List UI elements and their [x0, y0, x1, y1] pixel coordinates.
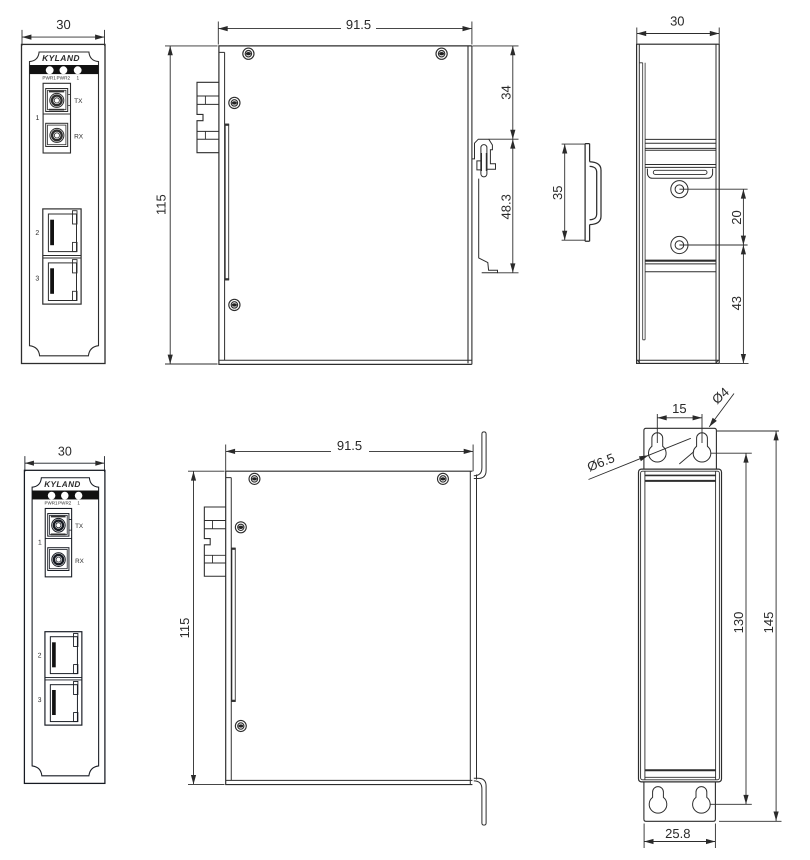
svg-text:115: 115	[154, 194, 169, 215]
svg-text:Ø4: Ø4	[709, 384, 732, 407]
svg-text:20: 20	[729, 210, 744, 224]
svg-text:Ø6.5: Ø6.5	[585, 450, 617, 474]
svg-text:15: 15	[672, 401, 686, 416]
svg-text:30: 30	[670, 14, 684, 29]
svg-text:115: 115	[177, 618, 192, 639]
svg-text:91.5: 91.5	[337, 438, 362, 453]
svg-text:43: 43	[729, 296, 744, 310]
svg-text:91.5: 91.5	[346, 17, 371, 32]
svg-text:35: 35	[550, 186, 565, 200]
svg-text:48.3: 48.3	[499, 194, 514, 219]
svg-text:25.8: 25.8	[665, 826, 690, 841]
svg-text:130: 130	[731, 612, 746, 634]
svg-text:34: 34	[499, 85, 514, 99]
svg-text:145: 145	[761, 612, 776, 634]
